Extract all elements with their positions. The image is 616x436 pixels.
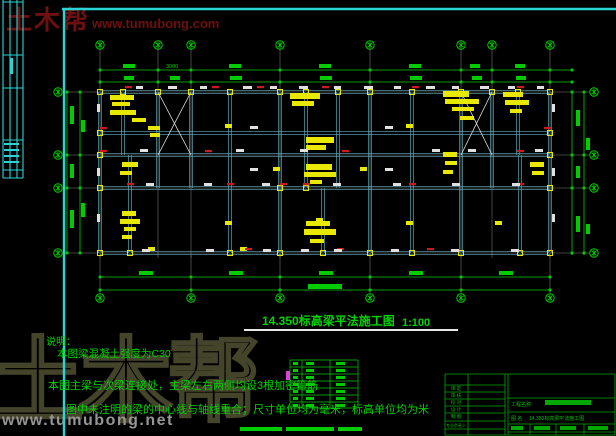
notes-heading: 说明： — [46, 335, 76, 348]
title-block-row-label: 审 核 — [451, 392, 462, 399]
drawing-scale: 1:100 — [402, 317, 430, 329]
title-block-labels: 审 定 审 核 校 对 设 计 制 图 专业负责人 工程名称 图 名 14.35… — [446, 385, 584, 428]
plan-geometry — [3, 0, 616, 436]
title-underline — [244, 329, 458, 331]
cad-drawing-canvas[interactable]: 14.350标高梁平法施工图 1:100 3000 说明： 本图梁混凝土强度为C… — [0, 0, 616, 436]
title-block-row-label: 审 定 — [451, 385, 462, 392]
dim-label-top: 3000 — [166, 64, 178, 70]
title-block-row-label: 专业负责人 — [446, 422, 466, 428]
cad-sheet: 土木帮 www.tumubong.com 土木帮 www.tumubong.ne… — [0, 0, 616, 436]
title-block-row-label: 校 对 — [451, 399, 462, 406]
title-block-row-label: 设 计 — [451, 406, 462, 413]
title-block-project-label: 工程名称 — [511, 401, 531, 408]
title-block-drawing-name: 14.350标高梁平法施工图 — [529, 415, 584, 422]
note-line-3: 图中未注明的梁的中心线与轴线重合；尺寸单位均为毫米，标高单位均为米 — [66, 402, 429, 416]
title-block-drawing-label: 图 名 — [511, 415, 522, 422]
note-line-1: 本图梁混凝土强度为C30 — [57, 347, 171, 360]
title-block-row-label: 制 图 — [451, 413, 462, 420]
drawing-title: 14.350标高梁平法施工图 — [262, 313, 395, 328]
note-line-2: 本图主梁与次梁连接处，主梁左右两侧均设3根加密箍筋 — [48, 378, 318, 392]
